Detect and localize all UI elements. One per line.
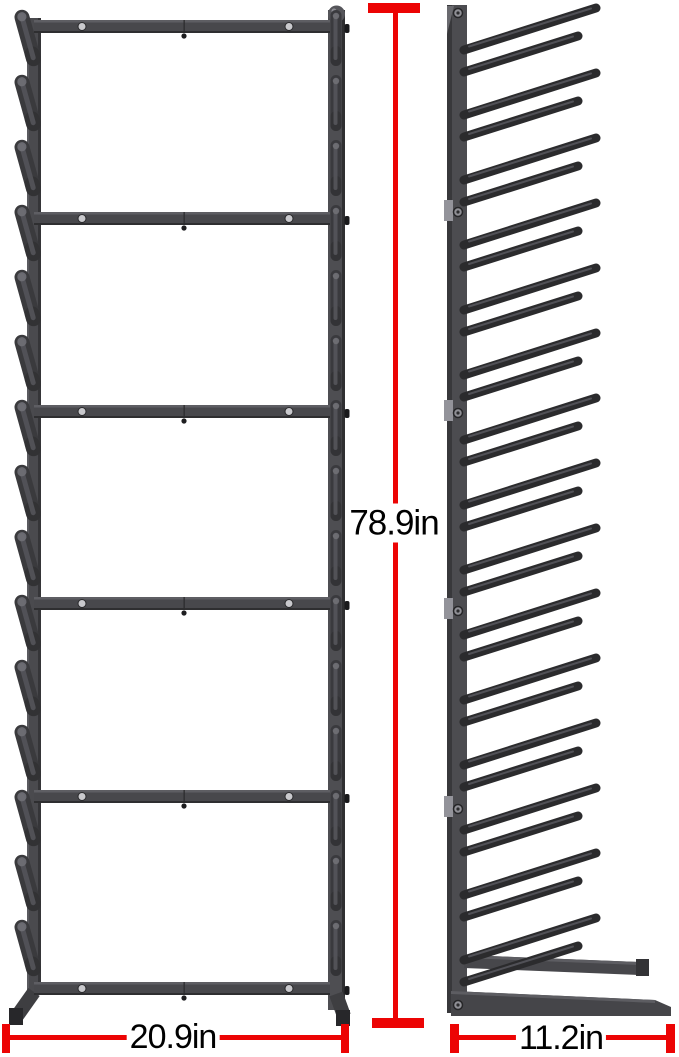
crossbar-center-seam bbox=[184, 982, 185, 995]
right-post-bolt-nub bbox=[345, 216, 350, 225]
front-right-peg bbox=[331, 270, 342, 326]
crossbar-weld-dot bbox=[181, 803, 186, 808]
crossbar-bottom-shade bbox=[34, 608, 330, 610]
crossbar-weld-dot bbox=[181, 225, 186, 230]
front-right-peg bbox=[331, 140, 342, 196]
side-upper-foot-end-cap bbox=[636, 959, 649, 976]
long-rod bbox=[464, 918, 596, 960]
crossbar-bottom-shade bbox=[34, 31, 330, 33]
side-rod-pair bbox=[464, 138, 596, 202]
side-post-screw-center bbox=[456, 411, 459, 414]
crossbar-top-highlight bbox=[34, 982, 330, 985]
peg-tip-highlight bbox=[333, 598, 339, 604]
side-rod-pair bbox=[464, 73, 596, 137]
side-rod-pair bbox=[464, 658, 596, 722]
peg-stripe bbox=[334, 729, 338, 775]
front-right-peg bbox=[331, 75, 342, 131]
front-right-peg bbox=[331, 465, 342, 521]
crossbar-weld-dot bbox=[181, 418, 186, 423]
peg-stripe bbox=[334, 664, 338, 710]
crossbar-weld-dot bbox=[181, 610, 186, 615]
side-post-screw-center bbox=[456, 609, 459, 612]
side-rod-pair bbox=[464, 528, 596, 592]
peg-stripe bbox=[334, 79, 338, 125]
depth-dim-right-cap bbox=[666, 1024, 675, 1053]
long-rod bbox=[464, 593, 596, 635]
peg-tip-highlight bbox=[333, 468, 339, 474]
peg-tip-highlight bbox=[333, 13, 339, 19]
side-joint-tab bbox=[444, 598, 453, 619]
crossbar-screw-hole bbox=[78, 408, 86, 416]
peg-stripe bbox=[334, 469, 338, 515]
long-rod bbox=[464, 333, 596, 375]
front-right-peg bbox=[331, 400, 342, 456]
width-dim-right-cap bbox=[341, 1024, 349, 1053]
height-dim-label: 78.9in bbox=[346, 504, 441, 543]
right-post-bolt-nub bbox=[345, 409, 350, 418]
rack-views-svg bbox=[0, 0, 679, 1057]
peg-stripe bbox=[334, 599, 338, 645]
peg-stripe bbox=[334, 794, 338, 840]
long-rod bbox=[464, 8, 596, 50]
right-post-bolt-nub bbox=[345, 794, 350, 803]
crossbar-weld-dot bbox=[181, 33, 186, 38]
side-post-screw-center bbox=[456, 210, 459, 213]
peg-stripe bbox=[334, 859, 338, 905]
peg-stripe bbox=[334, 209, 338, 255]
crossbar-screw-hole bbox=[285, 793, 293, 801]
peg-stripe bbox=[334, 924, 338, 970]
side-rod-pair bbox=[464, 8, 596, 72]
side-view-rack bbox=[444, 5, 671, 1016]
side-rod-pair bbox=[464, 203, 596, 267]
side-joint-tab bbox=[444, 200, 453, 221]
front-right-peg bbox=[331, 335, 342, 391]
crossbar-screw-hole bbox=[285, 215, 293, 223]
peg-stripe bbox=[334, 144, 338, 190]
crossbar-top-highlight bbox=[34, 20, 330, 23]
front-right-post-shade bbox=[342, 10, 345, 1010]
crossbar-screw-hole bbox=[285, 408, 293, 416]
depth-dim-left-cap bbox=[450, 1024, 459, 1053]
crossbar-center-seam bbox=[184, 597, 185, 610]
width-dim-left-cap bbox=[2, 1024, 10, 1053]
crossbar-top-highlight bbox=[34, 212, 330, 215]
front-crossbar bbox=[34, 597, 350, 616]
crossbar-top-highlight bbox=[34, 597, 330, 600]
front-right-peg bbox=[331, 205, 342, 261]
peg-tip-highlight bbox=[333, 208, 339, 214]
long-rod bbox=[464, 138, 596, 180]
side-rod-pair bbox=[464, 268, 596, 332]
depth-dim-label: 11.2in bbox=[516, 1019, 606, 1057]
front-view-rack bbox=[9, 6, 350, 1027]
side-post-screw-center bbox=[456, 807, 459, 810]
side-post-screw-center bbox=[456, 1003, 459, 1006]
long-rod bbox=[464, 658, 596, 700]
crossbar-screw-hole bbox=[78, 985, 86, 993]
front-right-peg bbox=[331, 660, 342, 716]
peg-tip-highlight bbox=[333, 403, 339, 409]
long-rod bbox=[464, 788, 596, 830]
long-rod bbox=[464, 203, 596, 245]
side-post-edge bbox=[447, 5, 452, 1013]
peg-tip-highlight bbox=[333, 533, 339, 539]
product-dimension-diagram: 78.9in 20.9in 11.2in bbox=[0, 0, 679, 1057]
front-crossbar bbox=[34, 790, 350, 809]
front-crossbar bbox=[34, 20, 350, 39]
crossbar-center-seam bbox=[184, 20, 185, 33]
side-rod-pair bbox=[464, 463, 596, 527]
crossbar-screw-hole bbox=[78, 23, 86, 31]
front-right-peg bbox=[331, 725, 342, 781]
long-rod bbox=[464, 723, 596, 765]
peg-stripe bbox=[334, 14, 338, 60]
width-dim-label: 20.9in bbox=[127, 1018, 220, 1056]
side-joint-tab bbox=[444, 796, 453, 817]
front-right-peg bbox=[331, 855, 342, 911]
peg-tip-highlight bbox=[333, 793, 339, 799]
side-rod-pair bbox=[464, 723, 596, 787]
front-right-peg bbox=[331, 10, 342, 66]
right-post-bolt-nub bbox=[345, 601, 350, 610]
right-post-bolt-nub bbox=[345, 986, 350, 995]
peg-tip-highlight bbox=[333, 273, 339, 279]
crossbar-bottom-shade bbox=[34, 223, 330, 225]
crossbar-center-seam bbox=[184, 212, 185, 225]
side-rod-pair bbox=[464, 593, 596, 657]
peg-stripe bbox=[334, 274, 338, 320]
side-rod-pair bbox=[464, 853, 596, 917]
peg-stripe bbox=[334, 534, 338, 580]
peg-tip-highlight bbox=[333, 923, 339, 929]
long-rod bbox=[464, 528, 596, 570]
side-rod-pair bbox=[464, 788, 596, 852]
crossbar-top-highlight bbox=[34, 790, 330, 793]
peg-tip-highlight bbox=[333, 143, 339, 149]
peg-tip-highlight bbox=[333, 78, 339, 84]
peg-tip-highlight bbox=[333, 728, 339, 734]
front-crossbar bbox=[34, 212, 350, 231]
front-right-peg bbox=[331, 920, 342, 976]
crossbar-screw-hole bbox=[78, 793, 86, 801]
crossbar-weld-dot bbox=[181, 995, 186, 1000]
height-dim-bottom-cap bbox=[372, 1018, 424, 1028]
peg-tip-highlight bbox=[333, 338, 339, 344]
front-right-peg bbox=[331, 790, 342, 846]
side-rod-pair bbox=[464, 398, 596, 462]
crossbar-screw-hole bbox=[285, 23, 293, 31]
long-rod bbox=[464, 463, 596, 505]
crossbar-bottom-shade bbox=[34, 801, 330, 803]
crossbar-center-seam bbox=[184, 790, 185, 803]
side-post-screw-center bbox=[456, 11, 459, 14]
long-rod bbox=[464, 73, 596, 115]
right-post-bolt-nub bbox=[345, 24, 350, 33]
long-rod bbox=[464, 853, 596, 895]
front-right-peg bbox=[331, 595, 342, 651]
peg-stripe bbox=[334, 339, 338, 385]
crossbar-bottom-shade bbox=[34, 993, 330, 995]
front-crossbar bbox=[34, 405, 350, 424]
peg-tip-highlight bbox=[333, 858, 339, 864]
peg-tip-highlight bbox=[333, 663, 339, 669]
front-crossbar bbox=[34, 982, 350, 1001]
height-dim-top-cap bbox=[368, 3, 420, 13]
crossbar-screw-hole bbox=[285, 985, 293, 993]
front-right-peg bbox=[331, 530, 342, 586]
crossbar-top-highlight bbox=[34, 405, 330, 408]
crossbar-screw-hole bbox=[78, 600, 86, 608]
crossbar-screw-hole bbox=[78, 215, 86, 223]
side-rod-pair bbox=[464, 333, 596, 397]
long-rod bbox=[464, 398, 596, 440]
crossbar-bottom-shade bbox=[34, 416, 330, 418]
side-joint-tab bbox=[444, 400, 453, 421]
crossbar-screw-hole bbox=[285, 600, 293, 608]
front-left-foot-cap bbox=[9, 1008, 23, 1025]
long-rod bbox=[464, 268, 596, 310]
crossbar-center-seam bbox=[184, 405, 185, 418]
peg-stripe bbox=[334, 404, 338, 450]
